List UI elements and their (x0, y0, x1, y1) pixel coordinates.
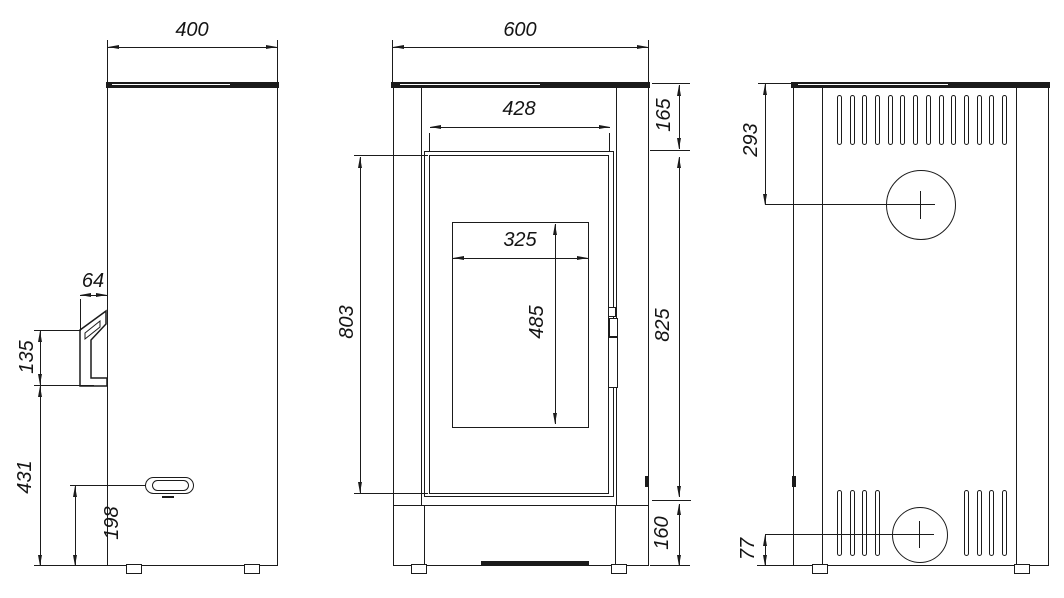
vent-slot (964, 490, 969, 556)
air-inlet-circle (892, 507, 948, 563)
back-panel-edge-left (822, 88, 823, 565)
vent-slot (1002, 490, 1007, 556)
vent-slot (926, 95, 931, 145)
back-foot-left (812, 564, 828, 574)
vent-slot (964, 95, 969, 145)
vent-slot (888, 95, 893, 145)
vent-slot (862, 95, 867, 145)
inlet-centerline-horizontal (765, 534, 934, 535)
vent-slot (977, 95, 982, 145)
vent-slot (989, 95, 994, 145)
dim-label-flue-center-from-top: 293 (741, 123, 761, 156)
vent-slot (951, 95, 956, 145)
back-side-bracket (792, 476, 796, 487)
vent-slot (837, 95, 842, 145)
flue-centerline-horizontal (765, 204, 935, 205)
dim-inlet-center-from-floor (765, 535, 766, 566)
back-bottom-vent-left (837, 490, 880, 556)
ext-line (757, 565, 793, 566)
vent-slot (875, 490, 880, 556)
back-panel-edge-right (1016, 88, 1017, 565)
vent-slot (977, 490, 982, 556)
vent-slot (862, 490, 867, 556)
dim-flue-center-from-top (765, 84, 766, 205)
technical-drawing-canvas: 400 64 135 431 198 (0, 0, 1064, 598)
back-bottom-vent-right (964, 490, 1007, 556)
vent-slot (1002, 95, 1007, 145)
back-foot-right (1014, 564, 1030, 574)
back-view: 293 77 (0, 0, 1064, 598)
back-top-vent-grid (837, 95, 1007, 145)
flue-centerline-vertical (920, 191, 921, 219)
vent-slot (900, 95, 905, 145)
back-top-plate-slit (798, 84, 948, 85)
dim-label-inlet-center-from-floor: 77 (738, 538, 758, 560)
flue-outlet-circle (886, 170, 956, 240)
vent-slot (850, 95, 855, 145)
inlet-centerline-vertical (919, 521, 920, 548)
vent-slot (939, 95, 944, 145)
back-body-outline (793, 87, 1049, 566)
vent-slot (837, 490, 842, 556)
vent-slot (913, 95, 918, 145)
vent-slot (989, 490, 994, 556)
vent-slot (850, 490, 855, 556)
vent-slot (875, 95, 880, 145)
